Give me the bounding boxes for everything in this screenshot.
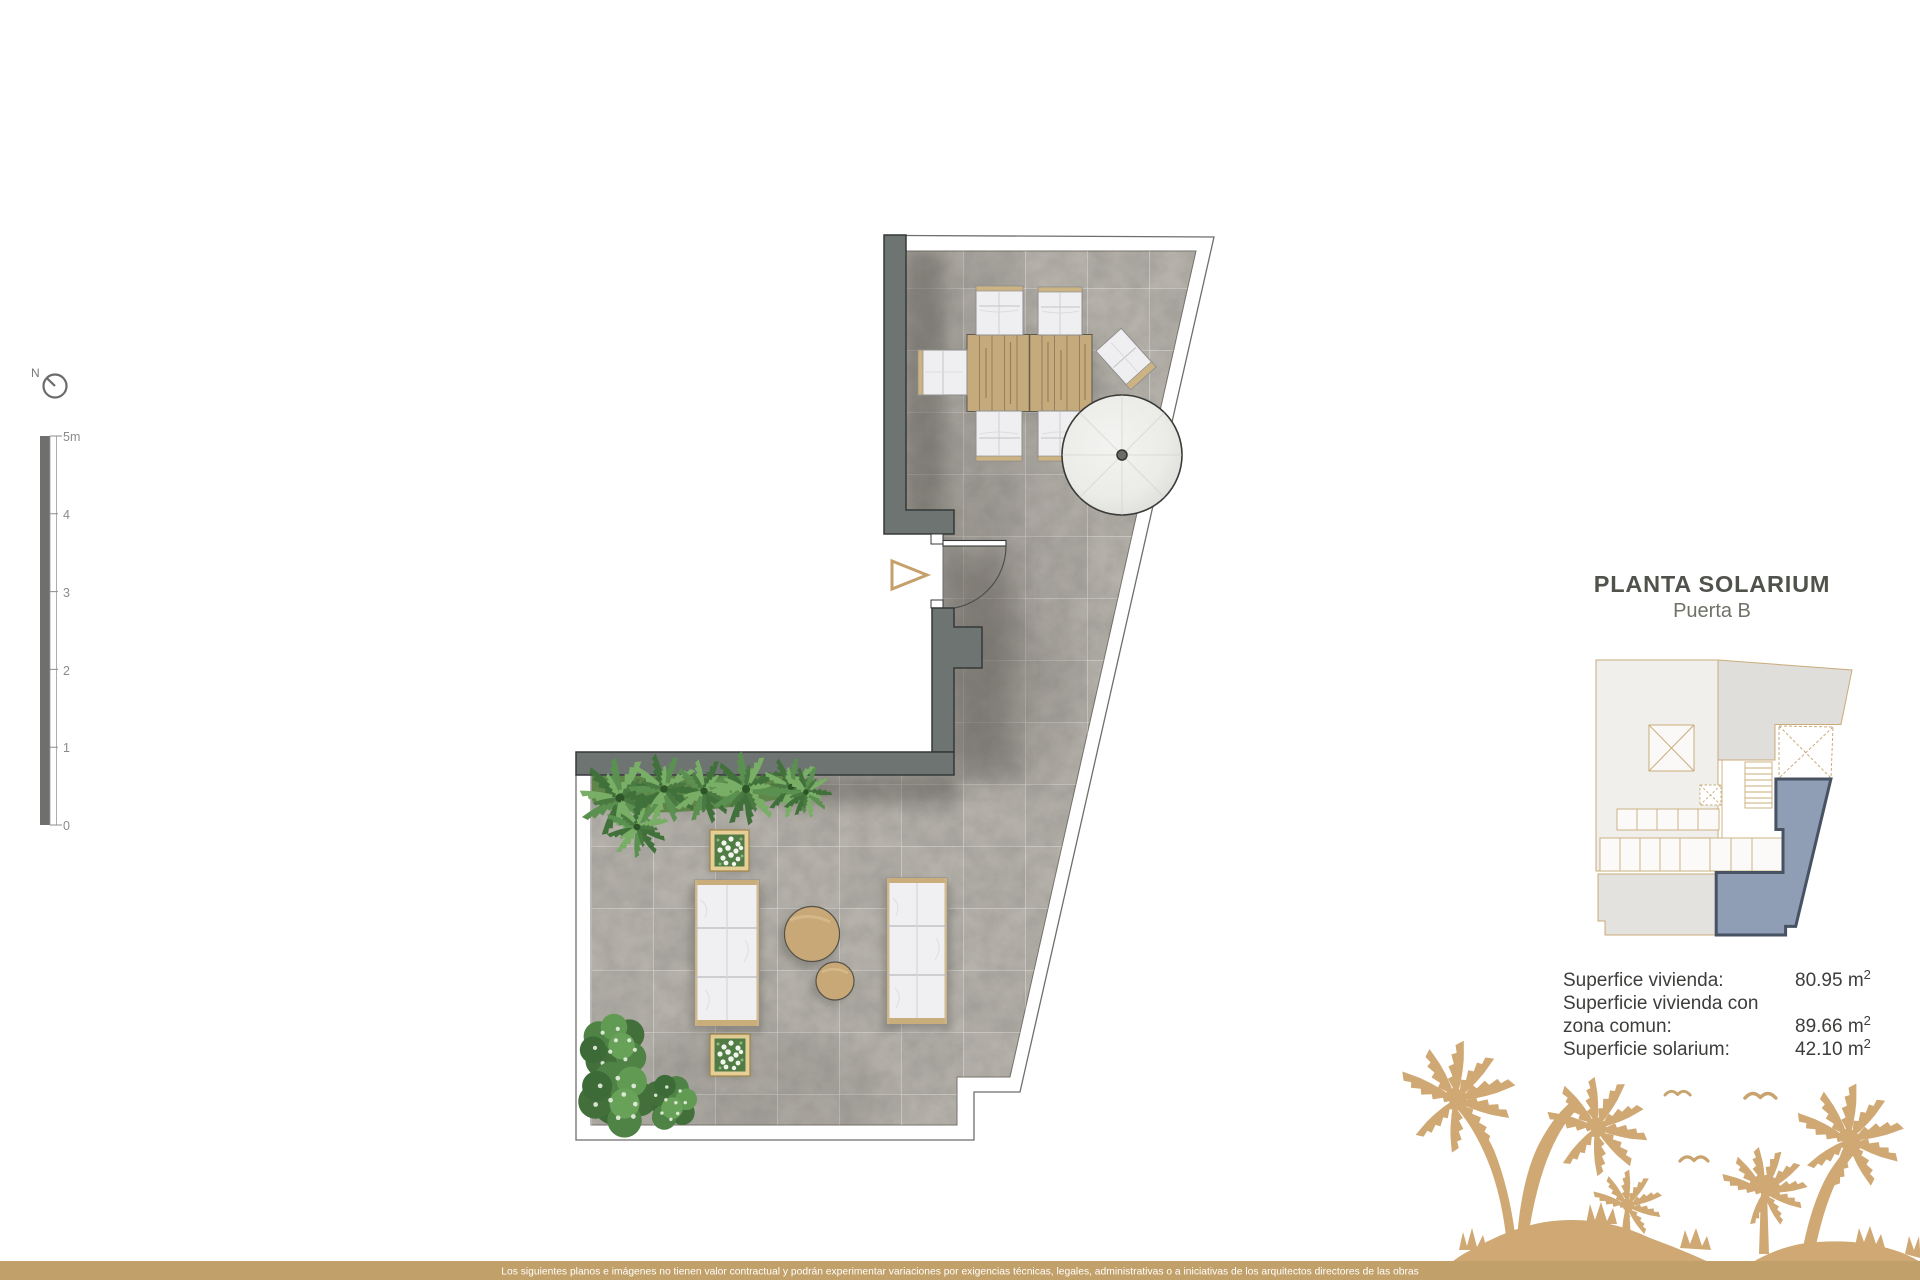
svg-text:Superfice vivienda:: Superfice vivienda: bbox=[1563, 970, 1724, 991]
svg-text:Superficie solarium:: Superficie solarium: bbox=[1563, 1039, 1730, 1060]
svg-text:0: 0 bbox=[63, 819, 70, 833]
svg-text:Los siguientes planos e imágen: Los siguientes planos e imágenes no tien… bbox=[501, 1267, 1419, 1278]
svg-text:5m: 5m bbox=[63, 430, 80, 444]
svg-text:80.95 m2: 80.95 m2 bbox=[1795, 967, 1871, 991]
svg-text:PLANTA SOLARIUM: PLANTA SOLARIUM bbox=[1594, 571, 1831, 597]
svg-text:1: 1 bbox=[63, 741, 70, 755]
svg-text:42.10 m2: 42.10 m2 bbox=[1795, 1036, 1871, 1060]
svg-text:Superficie vivienda con: Superficie vivienda con bbox=[1563, 993, 1758, 1014]
svg-text:89.66 m2: 89.66 m2 bbox=[1795, 1013, 1871, 1037]
svg-text:N: N bbox=[31, 366, 40, 380]
svg-text:2: 2 bbox=[63, 664, 70, 678]
svg-text:3: 3 bbox=[63, 586, 70, 600]
svg-text:4: 4 bbox=[63, 508, 70, 522]
svg-text:zona comun:: zona comun: bbox=[1563, 1016, 1672, 1037]
svg-text:Puerta B: Puerta B bbox=[1673, 600, 1751, 622]
